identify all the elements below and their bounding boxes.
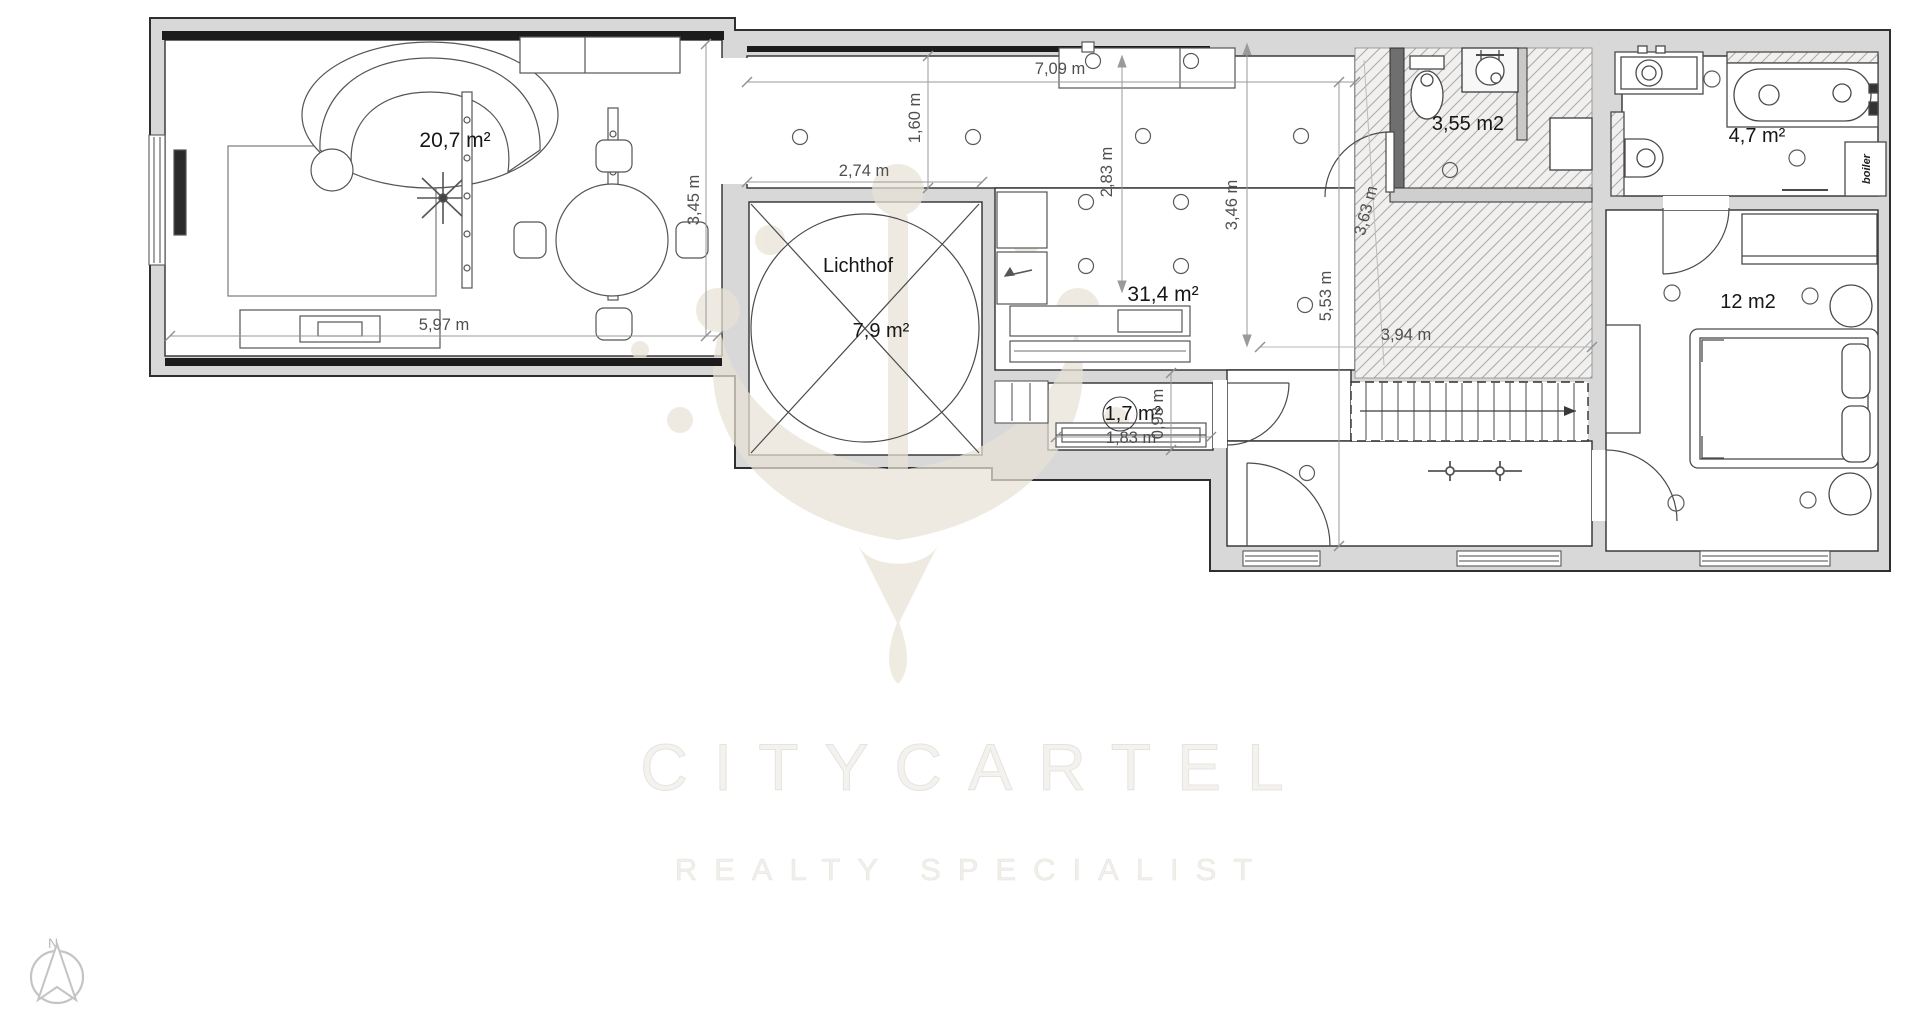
living-area-label: 20,7 m² <box>419 129 490 152</box>
tv-on-wall <box>174 150 186 235</box>
wc-area-label: 3,55 m2 <box>1432 113 1504 135</box>
lichthof-name-label: Lichthof <box>823 255 893 277</box>
staircase <box>1351 382 1588 441</box>
wardrobe <box>1742 214 1877 264</box>
north-arrow-icon <box>38 944 76 1000</box>
wall-cabinet <box>520 37 680 73</box>
bedroom-area-label: 12 m2 <box>1720 291 1776 313</box>
north-compass: N <box>31 935 83 1003</box>
watermark-tagline: REALTY SPECIALIST <box>675 852 1270 887</box>
washing-machine-icon <box>1615 46 1703 94</box>
dim-lichthof-width: 2,74 m <box>839 162 889 180</box>
wc-bottom-wall <box>1390 188 1592 202</box>
kitchen-area-label: 31,4 m² <box>1127 283 1198 306</box>
bathroom-area-label: 4,7 m² <box>1729 125 1786 147</box>
bathtub-icon <box>1727 52 1878 127</box>
coffee-table <box>311 149 353 191</box>
dim-corridor-depth: 1,60 m <box>906 93 924 143</box>
shaft-box <box>1550 118 1592 170</box>
living-left-window <box>149 135 165 265</box>
lichthof-area-label: 7,9 m² <box>853 320 910 342</box>
vestibule-window <box>995 381 1048 423</box>
living-passage-opening <box>716 58 753 184</box>
floorplan-page: 20,7 m² 31,4 m² Lichthof 7,9 m² 1,7 m² 3… <box>0 0 1920 1020</box>
wc-sink-icon <box>1476 50 1504 85</box>
room-divider-1 <box>462 92 472 288</box>
watermark-brand: CITYCARTEL <box>640 730 1310 804</box>
dresser <box>1606 325 1640 433</box>
dim-corridor-width: 7,09 m <box>1035 60 1085 78</box>
ceiling-fan-icon <box>417 172 469 224</box>
tall-cupboard <box>997 192 1047 304</box>
toilet-icon <box>1410 56 1444 119</box>
kitchen-counter-top <box>1059 42 1235 88</box>
pouf-bottom <box>1829 473 1871 515</box>
bedroom-window <box>1700 551 1830 566</box>
sideboard <box>240 310 440 348</box>
kitchen-island <box>1010 306 1190 362</box>
dim-living-depth: 3,45 m <box>685 175 703 225</box>
watermark: CITYCARTEL REALTY SPECIALIST <box>640 730 1310 887</box>
dim-living-width: 5,97 m <box>419 316 469 334</box>
dim-hall-depth: 3,46 m <box>1223 180 1241 230</box>
pouf-top <box>1830 285 1872 327</box>
dim-kitchen-depth: 2,83 m <box>1098 147 1116 197</box>
dim-vestibule-depth: 0,93 m <box>1149 389 1167 439</box>
dim-hall-height: 5,53 m <box>1317 271 1335 321</box>
double-bed-icon <box>1690 329 1878 468</box>
hall-window-1 <box>1243 551 1320 566</box>
hall-floor <box>1227 441 1592 546</box>
living-bottom-glazing-band <box>165 358 722 366</box>
boiler-label: boiler <box>1861 153 1873 184</box>
hall-upper-floor <box>1227 370 1351 441</box>
floorplan-drawing: 20,7 m² 31,4 m² Lichthof 7,9 m² 1,7 m² 3… <box>0 0 1920 1020</box>
dim-stair-length: 3,94 m <box>1381 326 1431 344</box>
hall-window-2 <box>1457 551 1561 566</box>
